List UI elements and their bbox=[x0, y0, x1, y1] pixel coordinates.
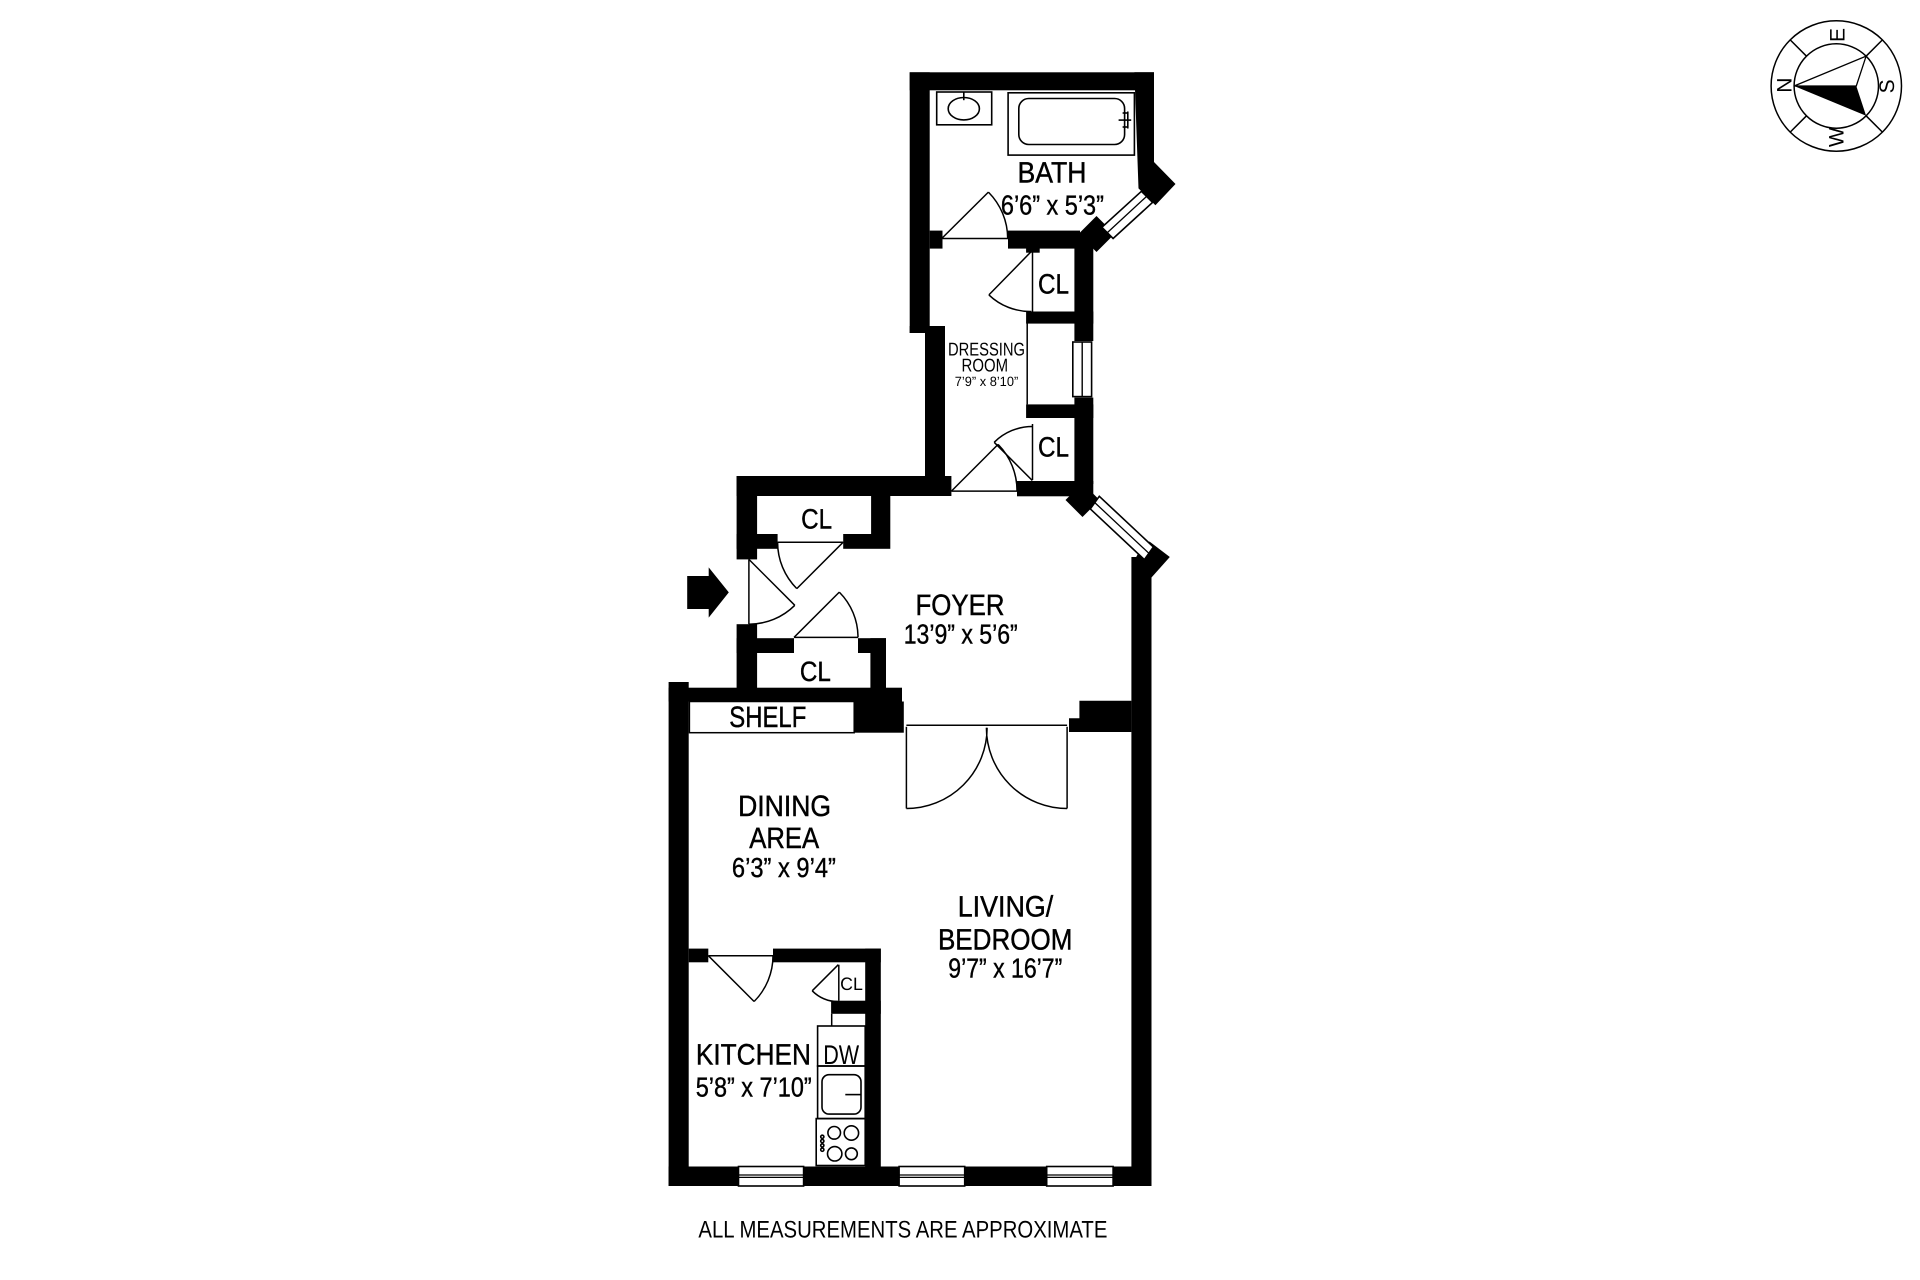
svg-text:9’7” x 16’7”: 9’7” x 16’7” bbox=[948, 953, 1062, 984]
svg-text:BEDROOM: BEDROOM bbox=[938, 924, 1073, 957]
svg-text:6’3” x 9’4”: 6’3” x 9’4” bbox=[732, 852, 836, 883]
svg-text:13’9” x 5’6”: 13’9” x 5’6” bbox=[904, 618, 1018, 649]
svg-text:ALL MEASUREMENTS ARE APPROXIMA: ALL MEASUREMENTS ARE APPROXIMATE bbox=[698, 1217, 1107, 1244]
svg-text:CL: CL bbox=[801, 503, 832, 534]
svg-text:KITCHEN: KITCHEN bbox=[696, 1038, 811, 1071]
svg-text:LIVING/: LIVING/ bbox=[958, 891, 1054, 924]
svg-text:DW: DW bbox=[823, 1040, 859, 1070]
svg-text:5’8” x 7’10”: 5’8” x 7’10” bbox=[696, 1072, 812, 1103]
svg-text:FOYER: FOYER bbox=[916, 589, 1005, 622]
svg-text:7’9” x 8’10”: 7’9” x 8’10” bbox=[955, 374, 1019, 389]
svg-text:S: S bbox=[1876, 79, 1899, 93]
svg-text:DINING: DINING bbox=[738, 790, 831, 823]
svg-text:CL: CL bbox=[840, 974, 863, 994]
svg-text:E: E bbox=[1827, 28, 1850, 42]
svg-text:AREA: AREA bbox=[749, 822, 819, 855]
svg-text:CL: CL bbox=[1038, 269, 1069, 300]
svg-text:W: W bbox=[1826, 127, 1849, 147]
svg-text:6’6” x 5’3”: 6’6” x 5’3” bbox=[1001, 189, 1104, 220]
svg-text:N: N bbox=[1774, 78, 1797, 93]
svg-text:SHELF: SHELF bbox=[729, 701, 806, 734]
svg-text:CL: CL bbox=[1038, 432, 1069, 463]
svg-text:BATH: BATH bbox=[1018, 157, 1087, 190]
svg-text:ROOM: ROOM bbox=[962, 355, 1009, 376]
svg-text:CL: CL bbox=[800, 656, 831, 687]
